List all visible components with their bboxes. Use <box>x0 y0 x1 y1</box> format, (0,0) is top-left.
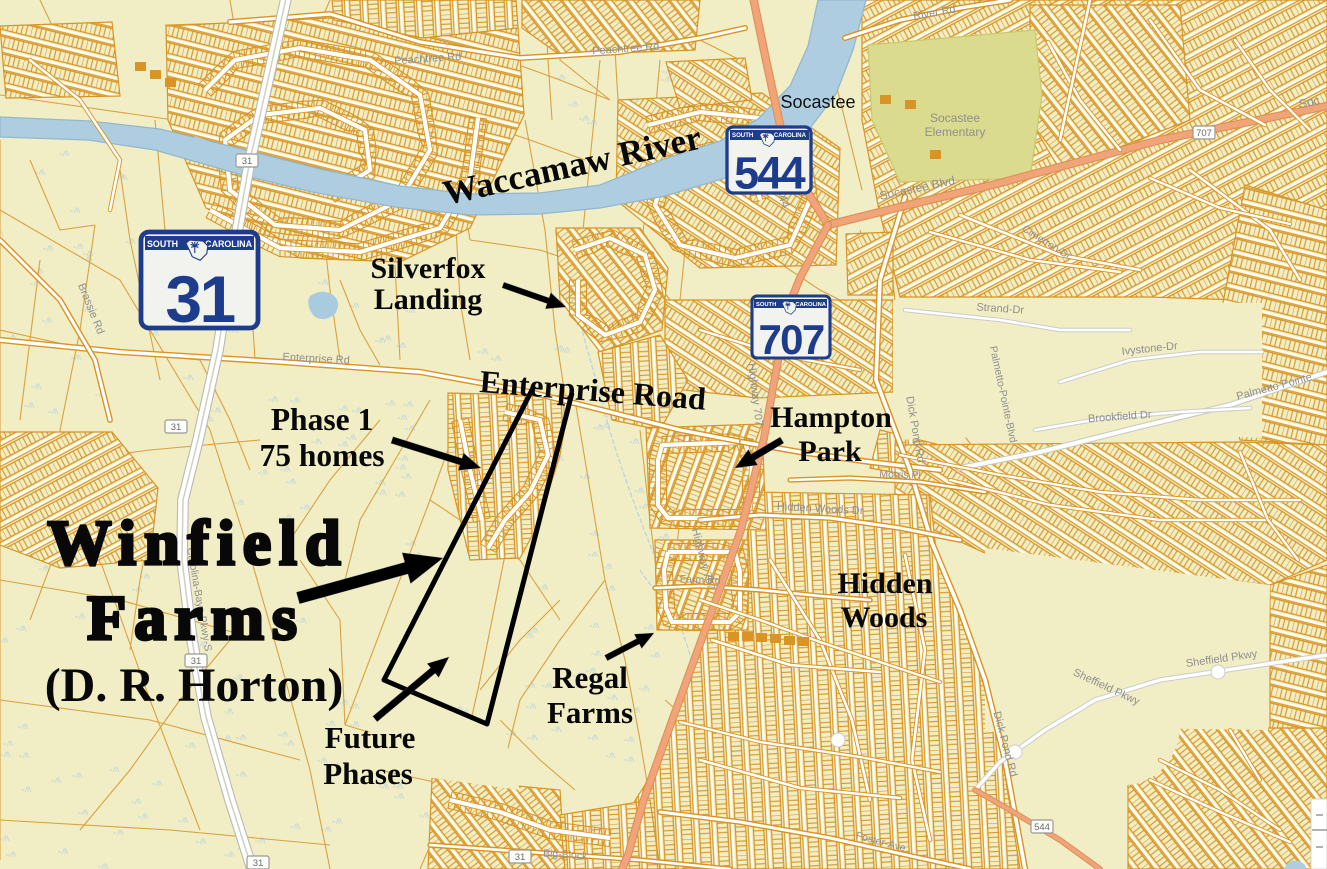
svg-text:Phase 1: Phase 1 <box>271 402 373 437</box>
svg-text:CAROLINA: CAROLINA <box>795 302 826 308</box>
svg-text:75 homes: 75 homes <box>259 438 384 473</box>
svg-text:31: 31 <box>515 852 526 863</box>
svg-text:Farm Rd: Farm Rd <box>679 573 720 586</box>
svg-text:Winfield: Winfield <box>47 507 348 578</box>
svg-text:Regal: Regal <box>552 660 628 695</box>
svg-text:SOUTH: SOUTH <box>756 302 776 308</box>
svg-text:31: 31 <box>171 422 182 433</box>
svg-text:Silverfox: Silverfox <box>371 252 486 285</box>
svg-text:31: 31 <box>165 262 234 336</box>
svg-text:Landing: Landing <box>374 283 482 316</box>
svg-text:31: 31 <box>253 858 264 869</box>
svg-text:Future: Future <box>325 720 416 755</box>
svg-text:SOUTH: SOUTH <box>147 239 178 249</box>
svg-text:31: 31 <box>242 156 253 167</box>
svg-text:CAROLINA: CAROLINA <box>774 132 807 139</box>
svg-text:Elementary: Elementary <box>925 125 986 139</box>
svg-text:Phases: Phases <box>323 756 413 791</box>
svg-text:Socastee: Socastee <box>780 92 855 112</box>
svg-text:Hidden: Hidden <box>837 567 932 600</box>
svg-text:544: 544 <box>1034 822 1050 833</box>
svg-text:Woods: Woods <box>841 601 928 634</box>
svg-text:CAROLINA: CAROLINA <box>205 239 252 249</box>
svg-text:707: 707 <box>1196 128 1212 139</box>
svg-text:544: 544 <box>734 148 805 199</box>
svg-text:(D. R. Horton): (D. R. Horton) <box>45 659 344 712</box>
svg-text:Farms: Farms <box>547 695 633 730</box>
svg-text:Hampton: Hampton <box>770 401 892 434</box>
svg-text:Socastee: Socastee <box>930 111 980 125</box>
svg-text:Morris Pl: Morris Pl <box>879 468 921 481</box>
svg-text:707: 707 <box>759 316 824 363</box>
svg-text:Park: Park <box>798 435 862 468</box>
svg-text:SOUTH: SOUTH <box>732 132 753 139</box>
svg-text:Farms: Farms <box>87 582 305 653</box>
